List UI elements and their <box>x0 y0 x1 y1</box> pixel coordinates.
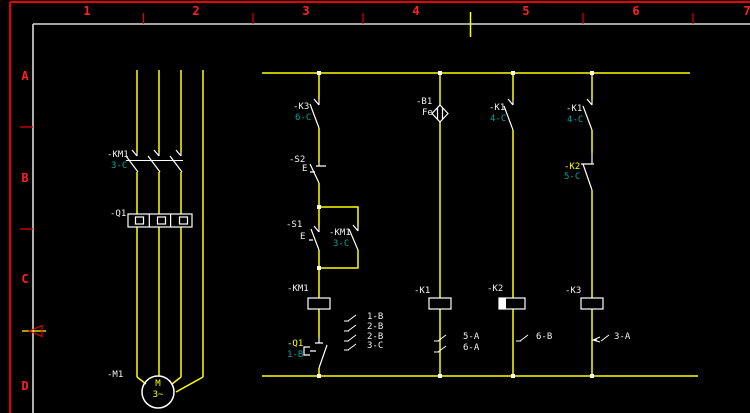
label-q1-main[interactable]: -Q1 <box>110 210 126 219</box>
km1-xref-row-2[interactable]: 2-B <box>367 323 383 332</box>
label-k1-coil[interactable]: -K1 <box>414 287 430 296</box>
k3-no-contact[interactable] <box>310 99 319 128</box>
xref-k1-contact-3[interactable]: 4-C <box>490 115 506 124</box>
s2-actuator: E <box>302 165 307 174</box>
label-km1-coil[interactable]: -KM1 <box>287 285 309 294</box>
q1-aux-contact[interactable] <box>304 338 327 368</box>
label-b1[interactable]: -B1 <box>416 98 432 107</box>
k1-no-contact-col6[interactable] <box>583 99 592 130</box>
column-label-7: 7 <box>737 5 750 17</box>
b1-thermal-sensor[interactable] <box>432 105 448 122</box>
cad-drawing-canvas: 1 2 3 4 5 6 7 A B C D -KM1 3-C -Q1 -M1 M… <box>0 0 750 413</box>
label-k2-contact[interactable]: -K2 <box>564 163 580 172</box>
column-label-3: 3 <box>296 5 316 17</box>
label-km1-main[interactable]: -KM1 <box>107 151 129 160</box>
label-km1-aux[interactable]: -KM1 <box>329 229 351 238</box>
s1-start-button[interactable] <box>309 226 319 250</box>
km1-xref-row-1[interactable]: 1-B <box>367 313 383 322</box>
power-feed-wires[interactable] <box>137 70 203 392</box>
label-m1[interactable]: -M1 <box>107 371 123 380</box>
xref-k3-contact[interactable]: 6-C <box>295 114 311 123</box>
row-label-a: A <box>18 70 32 82</box>
label-k3-contact[interactable]: -K3 <box>293 103 309 112</box>
column-label-5: 5 <box>516 5 536 17</box>
branch1-wire[interactable] <box>319 73 358 376</box>
label-k3-coil[interactable]: -K3 <box>565 287 581 296</box>
motor-phases: 3~ <box>146 391 170 400</box>
xref-q1-aux[interactable]: 1-B <box>287 351 303 360</box>
label-q1-aux[interactable]: -Q1 <box>287 340 303 349</box>
center-marker-left <box>22 326 46 337</box>
xref-km1-main[interactable]: 3-C <box>111 162 127 171</box>
row-label-b: B <box>18 172 32 184</box>
k2-nc-contact[interactable] <box>581 153 594 190</box>
k1-xref-row-2[interactable]: 6-A <box>463 344 479 353</box>
km1-main-contacts[interactable] <box>126 150 183 172</box>
s2-stop-button[interactable] <box>310 162 326 183</box>
motor-letter: M <box>146 380 170 389</box>
label-k1-contact-4[interactable]: -K1 <box>566 105 582 114</box>
label-k1-contact-3[interactable]: -K1 <box>489 104 505 113</box>
column-label-2: 2 <box>186 5 206 17</box>
column-label-6: 6 <box>626 5 646 17</box>
k2-xref-row-1[interactable]: 6-B <box>536 333 552 342</box>
k2-coil[interactable] <box>499 298 525 309</box>
q1-overload-relay[interactable] <box>128 214 192 227</box>
label-k2-coil[interactable]: -K2 <box>487 285 503 294</box>
label-b1-material: Fe <box>422 109 433 118</box>
km1-xref-row-4[interactable]: 3-C <box>367 342 383 351</box>
k2-xref-symbols[interactable] <box>516 335 528 341</box>
column-label-1: 1 <box>77 5 97 17</box>
row-label-c: C <box>18 273 32 285</box>
k1-xref-row-1[interactable]: 5-A <box>463 333 479 342</box>
xref-k1-contact-4[interactable]: 4-C <box>567 116 583 125</box>
row-label-d: D <box>18 380 32 392</box>
label-s1[interactable]: -S1 <box>286 221 302 230</box>
k3-xref-symbols[interactable] <box>592 335 609 342</box>
k3-coil[interactable] <box>581 298 603 309</box>
k3-xref-row-1[interactable]: 3-A <box>614 333 630 342</box>
xref-km1-aux[interactable]: 3-C <box>333 240 349 249</box>
k1-coil[interactable] <box>429 298 451 309</box>
frame-border <box>10 2 750 413</box>
km1-coil[interactable] <box>308 298 330 309</box>
column-label-4: 4 <box>406 5 426 17</box>
km1-xref-symbols[interactable] <box>344 315 356 350</box>
s1-actuator: E <box>300 233 305 242</box>
xref-k2-contact[interactable]: 5-C <box>564 173 580 182</box>
